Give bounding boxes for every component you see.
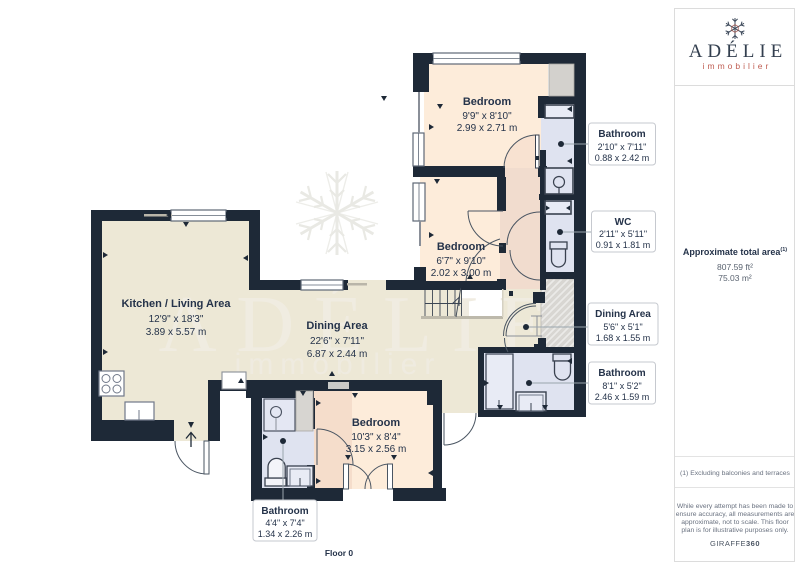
svg-text:9'9" x 8'10": 9'9" x 8'10" — [462, 111, 512, 122]
svg-text:2.99 x 2.71 m: 2.99 x 2.71 m — [457, 123, 518, 134]
svg-text:Bedroom: Bedroom — [437, 241, 486, 253]
svg-text:Bathroom: Bathroom — [598, 368, 645, 379]
svg-text:4'4" x 7'4": 4'4" x 7'4" — [265, 518, 304, 528]
svg-text:(1) Excluding balconies and te: (1) Excluding balconies and terraces — [680, 470, 791, 477]
svg-text:Bedroom: Bedroom — [463, 96, 512, 108]
svg-text:22'6" x 7'11": 22'6" x 7'11" — [310, 336, 365, 347]
svg-text:WC: WC — [615, 217, 632, 228]
svg-text:Bedroom: Bedroom — [352, 417, 401, 429]
svg-text:ensure accuracy, all measureme: ensure accuracy, all measurements are — [676, 511, 795, 518]
svg-text:6'7" x 9'10": 6'7" x 9'10" — [436, 256, 486, 267]
svg-text:Dining Area: Dining Area — [306, 320, 368, 332]
svg-text:1.68 x 1.55 m: 1.68 x 1.55 m — [596, 333, 651, 343]
svg-text:GIRAFFE360: GIRAFFE360 — [710, 539, 760, 548]
svg-text:immobilier: immobilier — [703, 61, 772, 71]
svg-text:12'9" x 18'3": 12'9" x 18'3" — [149, 314, 204, 325]
svg-text:3.15 x 2.56 m: 3.15 x 2.56 m — [346, 444, 407, 455]
svg-text:0.88 x 2.42 m: 0.88 x 2.42 m — [595, 153, 650, 163]
svg-text:Bathroom: Bathroom — [598, 129, 645, 140]
svg-text:While every attempt has been m: While every attempt has been made to — [677, 503, 794, 510]
svg-text:ADÉLIE: ADÉLIE — [689, 40, 788, 62]
svg-text:6.87 x 2.44 m: 6.87 x 2.44 m — [307, 349, 368, 360]
svg-text:10'3" x 8'4": 10'3" x 8'4" — [351, 432, 401, 443]
svg-text:Approximate total area(1): Approximate total area(1) — [683, 247, 787, 257]
svg-text:0.91 x 1.81 m: 0.91 x 1.81 m — [596, 240, 651, 250]
svg-text:8'1" x 5'2": 8'1" x 5'2" — [602, 381, 641, 391]
svg-text:75.03 m²: 75.03 m² — [718, 273, 752, 283]
svg-text:Kitchen / Living Area: Kitchen / Living Area — [121, 298, 231, 310]
svg-text:plan is for illustrative purpo: plan is for illustrative purposes only. — [681, 527, 788, 534]
svg-text:2'11" x 5'11": 2'11" x 5'11" — [599, 229, 647, 239]
svg-text:5'6" x 5'1": 5'6" x 5'1" — [603, 322, 642, 332]
svg-text:Floor 0: Floor 0 — [325, 548, 354, 558]
svg-text:approximate, not to scale. Thi: approximate, not to scale. This floor — [681, 519, 789, 526]
svg-text:807.59 ft²: 807.59 ft² — [717, 262, 753, 272]
svg-text:2.46 x 1.59 m: 2.46 x 1.59 m — [595, 392, 650, 402]
svg-text:Bathroom: Bathroom — [261, 506, 308, 517]
svg-text:2'10" x 7'11": 2'10" x 7'11" — [598, 142, 647, 152]
svg-text:Dining Area: Dining Area — [595, 309, 651, 320]
svg-text:3.89 x 5.57 m: 3.89 x 5.57 m — [146, 327, 207, 338]
svg-text:2.02 x 3.00 m: 2.02 x 3.00 m — [431, 268, 492, 279]
svg-text:1.34 x 2.26 m: 1.34 x 2.26 m — [258, 529, 313, 539]
